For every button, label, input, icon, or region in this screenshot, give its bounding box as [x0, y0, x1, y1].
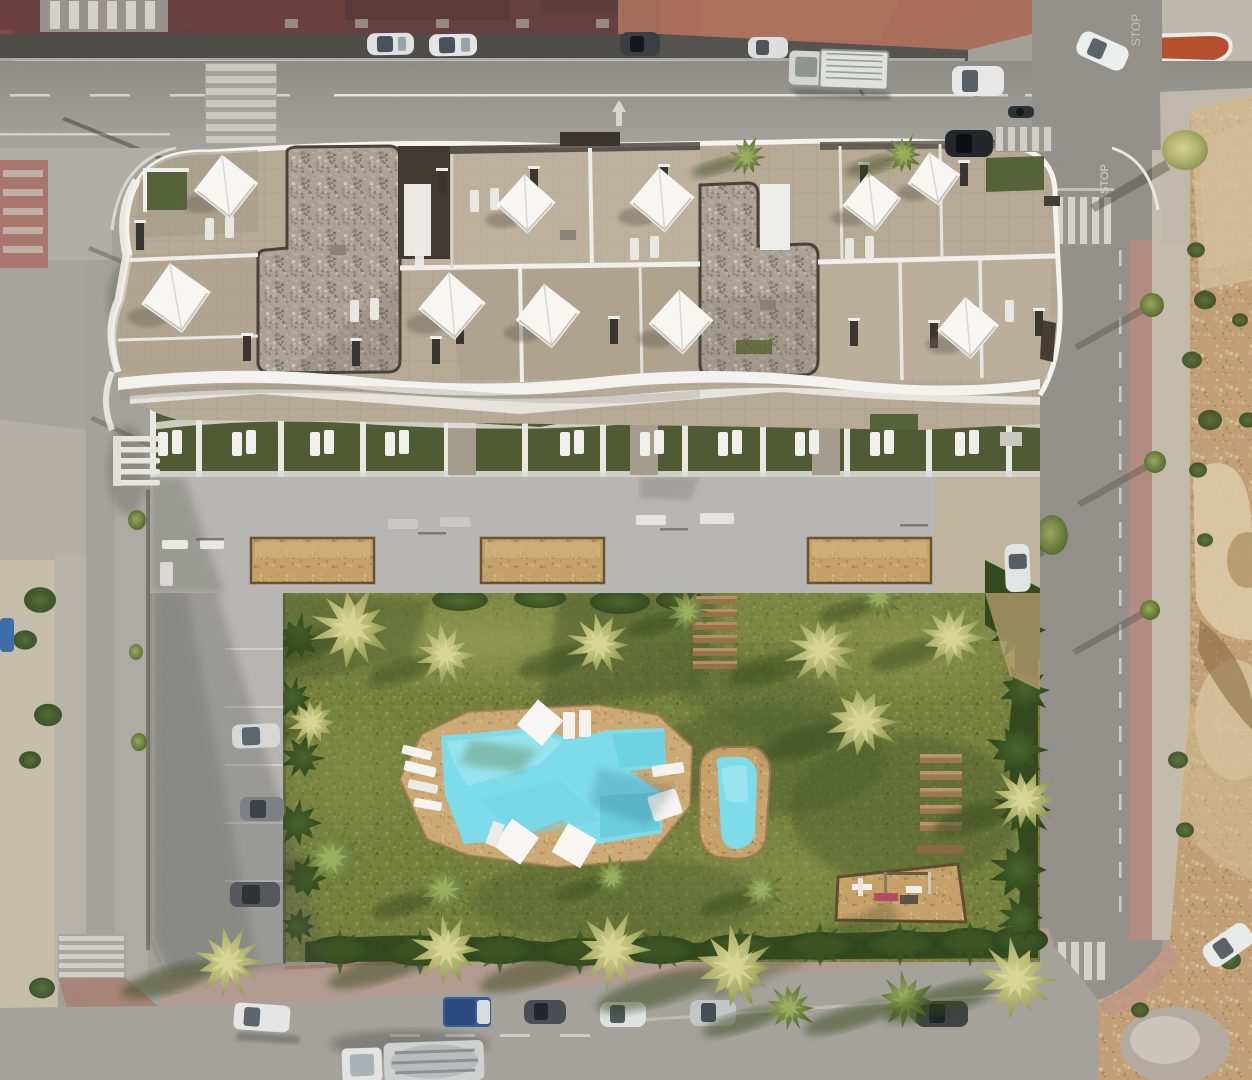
svg-text:STOP: STOP: [1129, 14, 1143, 46]
